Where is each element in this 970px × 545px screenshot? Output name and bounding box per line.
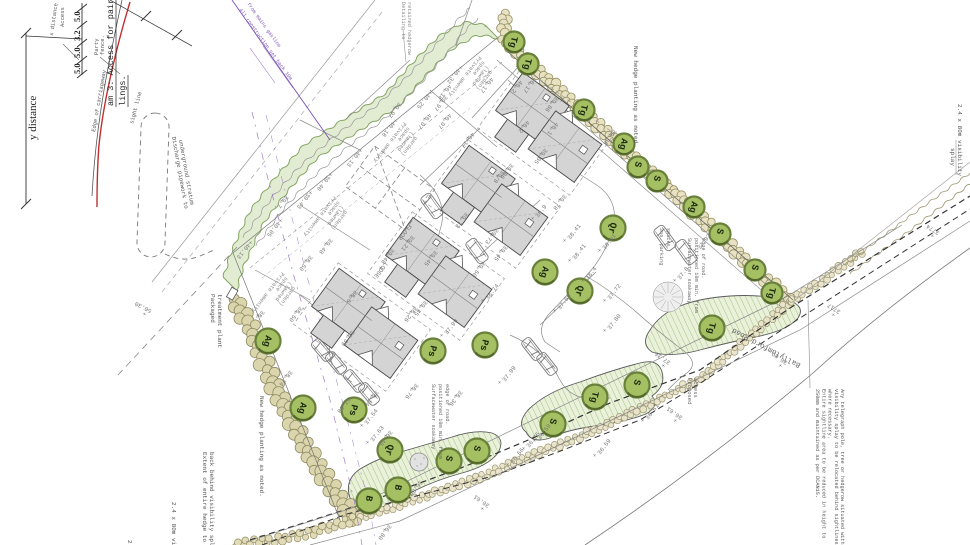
svg-text:splay: splay [949,148,956,166]
svg-text:New hedge planting as noted.: New hedge planting as noted. [632,46,639,147]
svg-text:Packaged: Packaged [209,294,216,323]
svg-text:Any telegraph pole, tree or he: Any telegraph pole, tree or hedgerow sit… [839,389,845,545]
svg-text:5.0: 5.0 [72,63,82,74]
svg-text:Detailing to: Detailing to [400,2,406,39]
svg-text:New hedge planting as noted.: New hedge planting as noted. [258,396,265,497]
svg-text:250mm and maintained as per DC: 250mm and maintained as per DCAN15. [814,389,820,498]
svg-text:2.4 x 80m visibility: 2.4 x 80m visibility [956,104,963,176]
svg-text:Surfacewater soakaway: Surfacewater soakaway [686,238,692,303]
svg-text:where necessary.: where necessary. [827,389,833,439]
svg-text:am 3: Access for paired: am 3: Access for paired [106,0,116,106]
svg-text:lings.: lings. [118,75,128,106]
svg-text:y distance: y distance [27,96,39,140]
svg-text:spaces: spaces [665,228,671,247]
svg-text:2no. parking: 2no. parking [658,228,664,265]
svg-text:back behind visibility splay: back behind visibility splay [208,452,215,545]
svg-text:Entire sightline area to be re: Entire sightline area to be reduced in h… [820,389,826,538]
svg-text:Extent of entire hedge to be s: Extent of entire hedge to be se [201,452,208,545]
svg-text:positioned 10m min. from: positioned 10m min. from [437,384,443,459]
svg-text:fence.: fence. [99,35,106,55]
svg-text:5.0: 5.0 [72,47,82,58]
svg-text:3.2: 3.2 [72,30,82,41]
svg-text:Surfacewater soakaway: Surfacewater soakaway [430,384,436,449]
svg-text:visibility splay to be relocat: visibility splay to be relocated behind … [833,389,839,545]
svg-text:edge of road.: edge of road. [700,238,706,278]
svg-text:access: access [692,378,699,398]
svg-text:2.: 2. [126,540,133,545]
svg-text:edge of road.: edge of road. [444,384,450,424]
svg-text:Proposed: Proposed [686,378,693,404]
svg-text:retained hedgerow: retained hedgerow [406,2,412,56]
svg-text:5.0: 5.0 [72,11,82,22]
svg-text:positioned 10m min. from: positioned 10m min. from [693,238,699,313]
svg-text:2.4 x 80m vi: 2.4 x 80m vi [170,502,177,545]
svg-text:Access: Access [59,7,66,27]
svg-text:treatment plant: treatment plant [216,294,223,348]
